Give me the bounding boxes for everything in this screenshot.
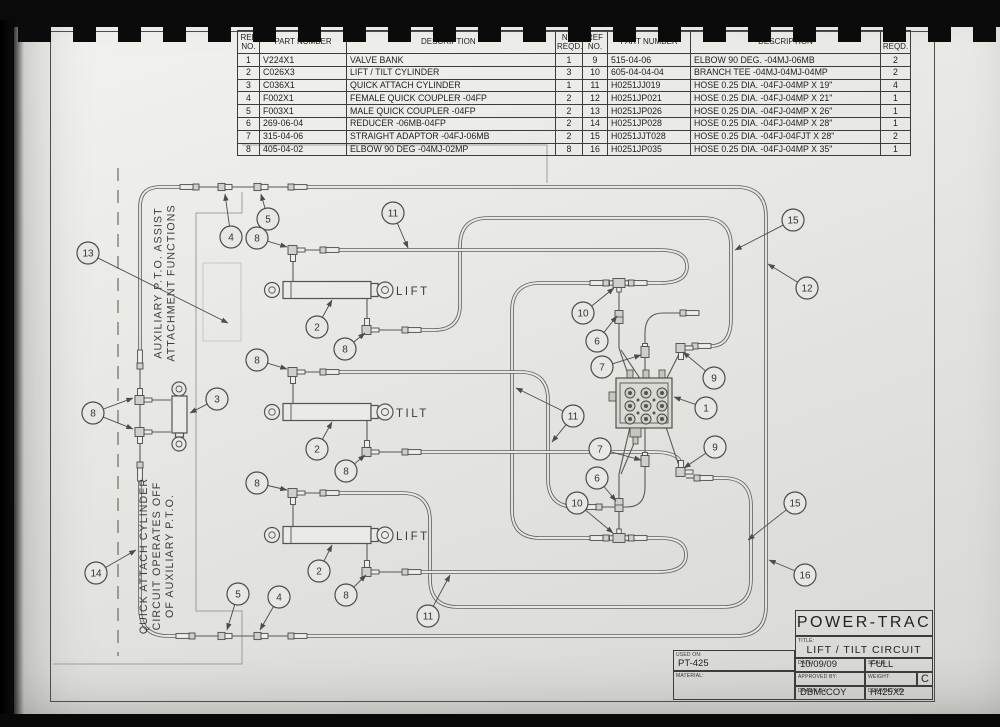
balloon-number: 2 [316,567,322,578]
parts-row: 5F003X1MALE QUICK COUPLER -04FP2 [238,105,583,118]
balloon-1: 1 [674,397,717,419]
balloon-16: 16 [769,560,816,586]
part-number-cell: H0251JP021 [608,92,691,105]
description-cell: ELBOW 90 DEG. -04MJ-06MB [691,54,881,67]
straight-adaptor [641,344,649,358]
balloon-number: 1 [703,404,709,415]
qty-cell: 1 [881,105,911,118]
balloon-number: 6 [594,337,600,348]
ref-no-cell: 2 [238,66,260,79]
parts-row: 13H0251JP026HOSE 0.25 DIA. -04FJ-04MP X … [583,105,911,118]
hose-11-lift-bottom [421,538,686,572]
qty-cell: 3 [556,66,583,79]
description-cell: HOSE 0.25 DIA. -04FJ-04MP X 35" [691,143,881,156]
part-number-cell: H0251JJ019 [608,79,691,92]
parts-row: 4F002X1FEMALE QUICK COUPLER -04FP2 [238,92,583,105]
balloon-number: 2 [314,323,320,334]
balloon-leader [552,425,566,442]
quick-coupler [218,632,232,639]
qty-cell: 2 [881,54,911,67]
part-number-cell: H0251JP035 [608,143,691,156]
qty-cell: 2 [556,117,583,130]
description-cell: HOSE 0.25 DIA. -04FJ-04MP X 28" [691,117,881,130]
description-cell: HOSE 0.25 DIA. -04FJ-04MP X 26" [691,105,881,118]
balloon-11: 11 [417,575,450,627]
description-cell: STRAIGHT ADAPTOR -04FJ-06MB [347,130,556,143]
ref-no-cell: 9 [583,54,608,67]
parts-row: 1V224X1VALVE BANK1 [238,54,583,67]
elbow-90-fitting [676,461,693,477]
valve-bank [609,370,672,444]
qty-cell: 2 [556,105,583,118]
balloon-number: 7 [597,445,603,456]
balloon-number: 8 [254,356,260,367]
qty-cell: 1 [881,92,911,105]
parts-row: 6269-06-04REDUCER -06MB-04FP2 [238,117,583,130]
balloon-number: 9 [711,374,717,385]
balloon-leader [683,352,706,371]
date-value: 10/09/09 [796,659,864,670]
part-number-cell: V224X1 [260,54,347,67]
photo-background: AUXILIARY P.T.O. ASSISTATTACHMENT FUNCTI… [0,0,1000,727]
balloon-number: 10 [571,499,583,510]
description-cell: HOSE 0.25 DIA. -04FJ-04MP X 19" [691,79,881,92]
scale-value: FULL [866,659,932,670]
qty-cell: 4 [881,79,911,92]
balloon-leader [106,550,136,568]
part-number-cell: C036X1 [260,79,347,92]
balloon-number: 5 [265,215,271,226]
approved-by-box: APPROVED BY: [795,672,865,686]
part-number-cell: F002X1 [260,92,347,105]
balloon-2: 2 [306,422,332,460]
balloon-number: 8 [342,345,348,356]
balloon-number: 8 [343,467,349,478]
description-cell: MALE QUICK COUPLER -04FP [347,105,556,118]
elbow-fitting [288,368,305,384]
parts-row: 2C026X3LIFT / TILT CYLINDER3 [238,66,583,79]
ref-no-cell: 1 [238,54,260,67]
part-number-cell: F003X1 [260,105,347,118]
used-on-box: USED ON: PT-425 [673,650,795,671]
part-number-cell: C026X3 [260,66,347,79]
part-number-cell: 269-06-04 [260,117,347,130]
quick-coupler [254,183,268,190]
parts-row: 14H0251JP028HOSE 0.25 DIA. -04FJ-04MP X … [583,117,911,130]
elbow-fitting [362,441,379,457]
drawing-title-box: TITLE: LIFT / TILT CIRCUIT [795,636,933,658]
lift-cylinder-upper [265,282,394,299]
ref-no-cell: 3 [238,79,260,92]
cylinder-label: TILT [396,408,429,420]
balloon-10: 10 [572,288,614,324]
balloon-leader [397,223,408,248]
elbow-fitting [362,561,379,577]
balloon-9: 9 [684,436,726,468]
balloon-leader [322,422,332,439]
balloon-leader [268,485,287,490]
parts-row: 12H0251JP021HOSE 0.25 DIA. -04FJ-04MP X … [583,92,911,105]
balloon-number: 7 [599,363,605,374]
parts-row: 3C036X1QUICK ATTACH CYLINDER1 [238,79,583,92]
balloon-5: 5 [257,194,279,230]
balloon-leader [674,397,696,404]
balloon-number: 11 [423,612,434,623]
cylinder-label: LIFT [396,531,430,543]
date-box: DATE: 10/09/09 [795,658,865,672]
revision-letter: C [917,672,933,686]
description-cell: REDUCER -06MB-04FP [347,117,556,130]
qty-cell: 2 [881,66,911,79]
part-number-cell: H0251JJT028 [608,130,691,143]
elbow-fitting [362,319,379,335]
material-label: MATERIAL: [676,673,704,679]
description-cell: BRANCH TEE -04MJ-04MJ-04MP [691,66,881,79]
balloon-leader [260,607,274,630]
balloon-leader [227,605,235,630]
scale-box: SCALE: FULL [865,658,933,672]
balloon-leader [225,194,229,226]
tilt-cylinder [265,404,394,421]
quick-coupler [218,183,232,190]
balloon-15: 15 [735,209,804,250]
balloon-number: 12 [801,284,813,295]
balloon-number: 11 [568,412,579,423]
balloon-number: 5 [235,590,241,601]
material-box: MATERIAL: [673,671,795,700]
description-cell: FEMALE QUICK COUPLER -04FP [347,92,556,105]
balloon-2: 2 [308,545,332,582]
balloon-leader [268,363,287,369]
straight-adaptor [641,453,649,467]
elbow-fitting [135,428,152,444]
description-cell: HOSE 0.25 DIA. -04FJ-04FJT X 28" [691,130,881,143]
balloon-4: 4 [260,586,290,630]
ref-no-cell: 5 [238,105,260,118]
approved-by-label: APPROVED BY: [798,674,837,680]
balloon-9: 9 [683,352,725,389]
qty-cell: 2 [556,130,583,143]
balloon-10: 10 [566,492,613,533]
balloon-leader [354,333,365,342]
balloon-leader [322,300,332,317]
quick-coupler [254,632,268,639]
description-cell: ELBOW 90 DEG -04MJ-02MP [347,143,556,156]
balloon-leader [613,355,641,364]
weight-box: WEIGHT: [865,672,917,686]
parts-row: 11H0251JJ019HOSE 0.25 DIA. -04FJ-04MP X … [583,79,911,92]
balloon-number: 11 [388,209,399,220]
balloon-leader [735,225,783,250]
balloon-leader [585,510,613,533]
balloon-leader [354,455,365,464]
balloon-leader [268,241,287,247]
hose-11-lift-top [339,250,687,283]
branch-tee [610,529,629,543]
balloon-11: 11 [516,388,584,442]
balloon-number: 15 [789,499,801,510]
balloon-leader [261,194,265,208]
qty-cell: 1 [556,54,583,67]
ref-no-cell: 6 [238,117,260,130]
balloon-11: 11 [382,202,408,248]
part-number-cell: 515-04-06 [608,54,691,67]
parts-row: 10605-04-04-04BRANCH TEE -04MJ-04MJ-04MP… [583,66,911,79]
quick-attach-cylinder [172,382,187,451]
ref-no-cell: 11 [583,79,608,92]
binder-spine-shadow [0,20,24,727]
ref-no-cell: 16 [583,143,608,156]
ref-no-cell: 13 [583,105,608,118]
balloon-number: 4 [228,233,234,244]
qty-cell: 8 [556,143,583,156]
qty-cell: 1 [556,79,583,92]
balloon-4: 4 [220,194,242,248]
balloon-number: 3 [214,395,220,406]
cylinder-label: LIFT [396,286,430,298]
balloon-number: 16 [799,571,811,582]
balloon-number: 6 [594,474,600,485]
balloon-8: 8 [334,333,365,360]
parts-row: 16H0251JP035HOSE 0.25 DIA. -04FJ-04MP X … [583,143,911,156]
ref-no-cell: 12 [583,92,608,105]
description-cell: QUICK ATTACH CYLINDER [347,79,556,92]
used-on-value: PT-425 [674,658,794,669]
description-cell: VALVE BANK [347,54,556,67]
balloon-14: 14 [85,550,136,584]
balloon-8: 8 [335,455,365,482]
balloon-number: 15 [787,216,799,227]
qty-cell: 1 [881,143,911,156]
balloon-number: 10 [577,309,589,320]
ref-no-cell: 7 [238,130,260,143]
binder-bottom-edge [0,714,1000,727]
parts-row: 7315-04-06STRAIGHT ADAPTOR -04FJ-06MB2 [238,130,583,143]
balloon-leader [592,288,614,306]
vertical-note: AUXILIARY P.T.O. ASSISTATTACHMENT FUNCTI… [153,204,178,361]
balloon-8: 8 [246,349,287,371]
balloon-number: 8 [90,409,96,420]
part-number-cell: 405-04-02 [260,143,347,156]
description-cell: HOSE 0.25 DIA. -04FJ-04MP X 21" [691,92,881,105]
qty-cell: 1 [881,117,911,130]
parts-row: 8405-04-02ELBOW 90 DEG -04MJ-02MP8 [238,143,583,156]
balloon-5: 5 [227,583,249,630]
reducer [615,499,623,512]
balloon-8: 8 [335,575,366,606]
drawing-title: LIFT / TILT CIRCUIT [796,644,932,656]
balloon-12: 12 [768,264,818,299]
drawing-number-box: DRAWING NO: H425X2 [865,686,933,700]
balloon-leader [769,560,795,571]
comb-binding [0,27,1000,42]
parts-row: 9515-04-06ELBOW 90 DEG. -04MJ-06MB2 [583,54,911,67]
parts-row: 15H0251JJT028HOSE 0.25 DIA. -04FJ-04FJT … [583,130,911,143]
ref-no-cell: 14 [583,117,608,130]
balloon-2: 2 [306,300,332,338]
description-cell: LIFT / TILT CYLINDER [347,66,556,79]
elbow-fitting [288,246,305,262]
drawing-number-value: H425X2 [866,687,932,698]
balloon-number: 8 [254,234,260,245]
balloon-number: 4 [276,593,282,604]
balloon-8: 8 [82,398,133,429]
balloon-number: 13 [82,249,94,260]
balloon-number: 8 [343,591,349,602]
drawn-by-value: DBMcCOY [796,687,864,698]
balloon-number: 2 [314,445,320,456]
balloon-callouts: 1383144581128828828541111151210679179610… [77,194,818,630]
balloon-number: 9 [712,443,718,454]
qty-cell: 2 [556,92,583,105]
balloon-7: 7 [591,355,641,378]
part-number-cell: 315-04-06 [260,130,347,143]
company-name: POWER-TRAC [795,610,933,636]
parts-table-left: REF NO.PART NUMBERDESCRIPTION *NO. REQD.… [237,30,583,156]
branch-tee [610,279,629,293]
ref-no-cell: 15 [583,130,608,143]
weight-label: WEIGHT: [868,674,890,680]
part-number-cell: H0251JP026 [608,105,691,118]
balloon-15: 15 [748,492,806,540]
balloon-leader [190,404,207,413]
lift-cylinder-lower [265,527,394,544]
balloon-leader [768,264,798,282]
qty-cell: 2 [881,130,911,143]
balloon-8: 8 [246,472,287,494]
balloon-number: 8 [254,479,260,490]
drawn-by-box: DRAWN BY: DBMcCOY [795,686,865,700]
elbow-fitting [288,489,305,505]
ref-no-cell: 8 [238,143,260,156]
balloon-leader [604,486,616,501]
vertical-note: QUICK ATTACH CYLINDERCIRCUIT OPERATES OF… [138,478,176,634]
part-number-cell: H0251JP028 [608,117,691,130]
elbow-fitting [135,389,152,405]
part-number-cell: 605-04-04-04 [608,66,691,79]
balloon-6: 6 [586,467,616,501]
balloon-leader [324,545,332,561]
binder-top-edge [0,0,1000,27]
elbow-90-fitting [676,344,693,360]
balloon-leader [354,575,366,587]
balloon-leader [684,453,706,468]
ref-no-cell: 10 [583,66,608,79]
balloon-number: 14 [90,569,102,580]
ref-no-cell: 4 [238,92,260,105]
balloon-leader [516,388,563,411]
balloon-leader [604,316,617,332]
parts-table-right: REF NO.PART NUMBERDESCRIPTIONNO. REQD. 9… [582,30,911,156]
